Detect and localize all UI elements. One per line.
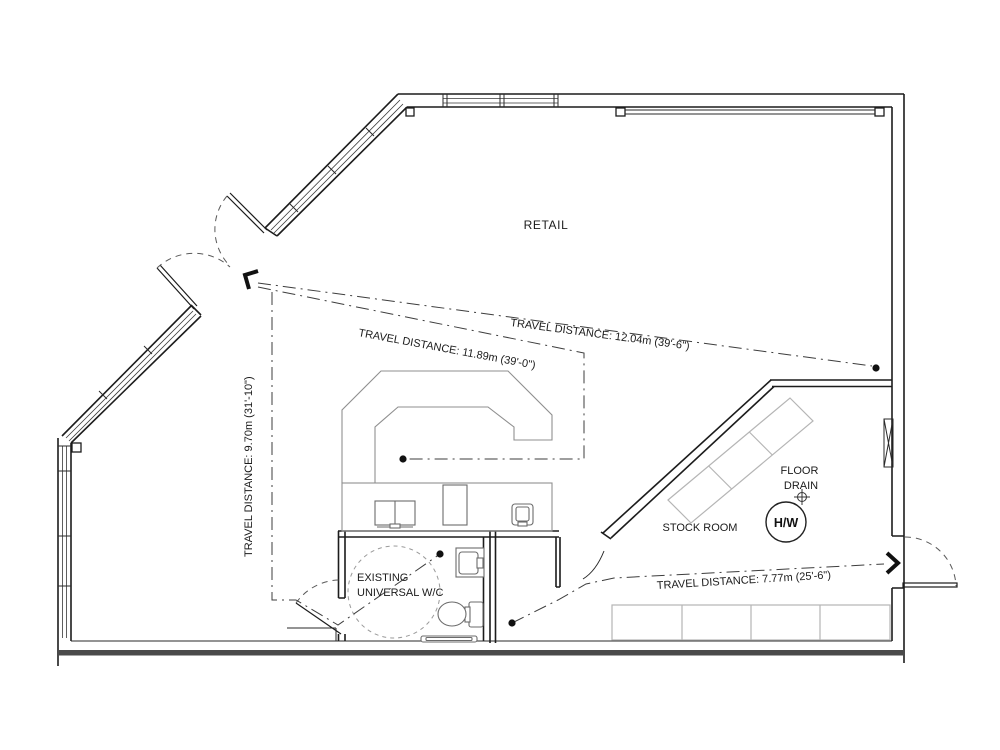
ceiling-beam xyxy=(406,108,884,116)
room-label-stock-room: STOCK ROOM xyxy=(663,522,738,534)
wc-floor-mat xyxy=(421,636,477,642)
floor-plan-drawing: RETAIL STOCK ROOM EXISTING UNIVERSAL W/C… xyxy=(0,0,1000,750)
wc-sink xyxy=(456,548,484,577)
entrance-doors xyxy=(157,193,267,309)
bottom-wall xyxy=(58,641,905,656)
wc-door-swing xyxy=(296,580,341,603)
travel-route-2-line xyxy=(258,287,584,459)
room-label-retail: RETAIL xyxy=(524,218,569,232)
column xyxy=(616,108,625,116)
side-exit-door xyxy=(903,537,957,587)
travel-distance-label-1: TRAVEL DISTANCE: 12.04m (39'-6") xyxy=(510,317,691,352)
travel-route-3-endpoint xyxy=(436,550,443,557)
travel-route-1-endpoint xyxy=(872,364,879,371)
column xyxy=(875,108,884,116)
diagonal-wall-upper xyxy=(265,94,407,236)
travel-route-2-endpoint xyxy=(399,455,406,462)
counter-gate xyxy=(443,485,467,525)
bottom-shelving xyxy=(612,605,890,640)
room-label-wc: EXISTING UNIVERSAL W/C xyxy=(357,572,443,599)
label-hot-water: H/W xyxy=(774,516,799,530)
travel-distance-label-3: TRAVEL DISTANCE: 9.70m (31'-10") xyxy=(243,376,255,557)
retail-counter xyxy=(342,371,552,531)
counter-till xyxy=(512,504,533,526)
label-floor-drain: FLOOR DRAIN xyxy=(781,465,822,492)
travel-distance-label-4: TRAVEL DISTANCE: 7.77m (25'-6") xyxy=(656,569,831,592)
floor-plan-canvas: RETAIL STOCK ROOM EXISTING UNIVERSAL W/C… xyxy=(0,0,1000,750)
wc-toilet xyxy=(438,602,483,627)
storefront-window-top xyxy=(443,94,558,107)
wc-door-leaf xyxy=(296,603,341,634)
left-wall xyxy=(58,438,81,666)
route-start-arrow-icon xyxy=(245,271,258,289)
travel-distance-label-2: TRAVEL DISTANCE: 11.89m (39'-0") xyxy=(357,327,536,372)
column xyxy=(72,443,81,452)
counter-cabinet xyxy=(375,501,415,528)
exit-arrow-icon xyxy=(887,553,898,573)
travel-route-4-startpoint xyxy=(508,619,515,626)
diagonal-wall-lower xyxy=(62,305,201,443)
column xyxy=(406,108,414,116)
stock-room-door-swing xyxy=(583,551,604,579)
